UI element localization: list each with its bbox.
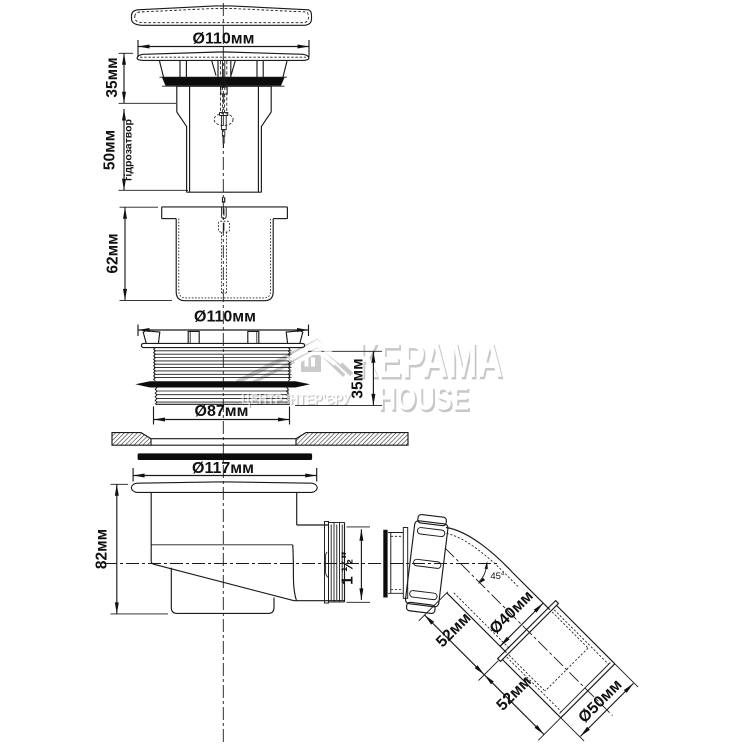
svg-text:35мм: 35мм (350, 358, 367, 398)
svg-text:Ø110мм: Ø110мм (194, 309, 256, 326)
svg-text:82мм: 82мм (94, 529, 111, 569)
svg-text:ЦЕНТР ІНТЕР’ЄРУ: ЦЕНТР ІНТЕР’ЄРУ (241, 391, 351, 408)
svg-text:50мм: 50мм (102, 130, 119, 170)
svg-text:Ø117мм: Ø117мм (192, 460, 254, 477)
svg-text:Ø110мм: Ø110мм (193, 31, 255, 48)
svg-text:35мм: 35мм (104, 57, 121, 97)
svg-text:1 ½”: 1 ½” (340, 551, 357, 585)
svg-text:45°: 45° (490, 571, 505, 582)
svg-text:62мм: 62мм (105, 233, 122, 273)
svg-text:HOUSE: HOUSE (378, 381, 469, 418)
